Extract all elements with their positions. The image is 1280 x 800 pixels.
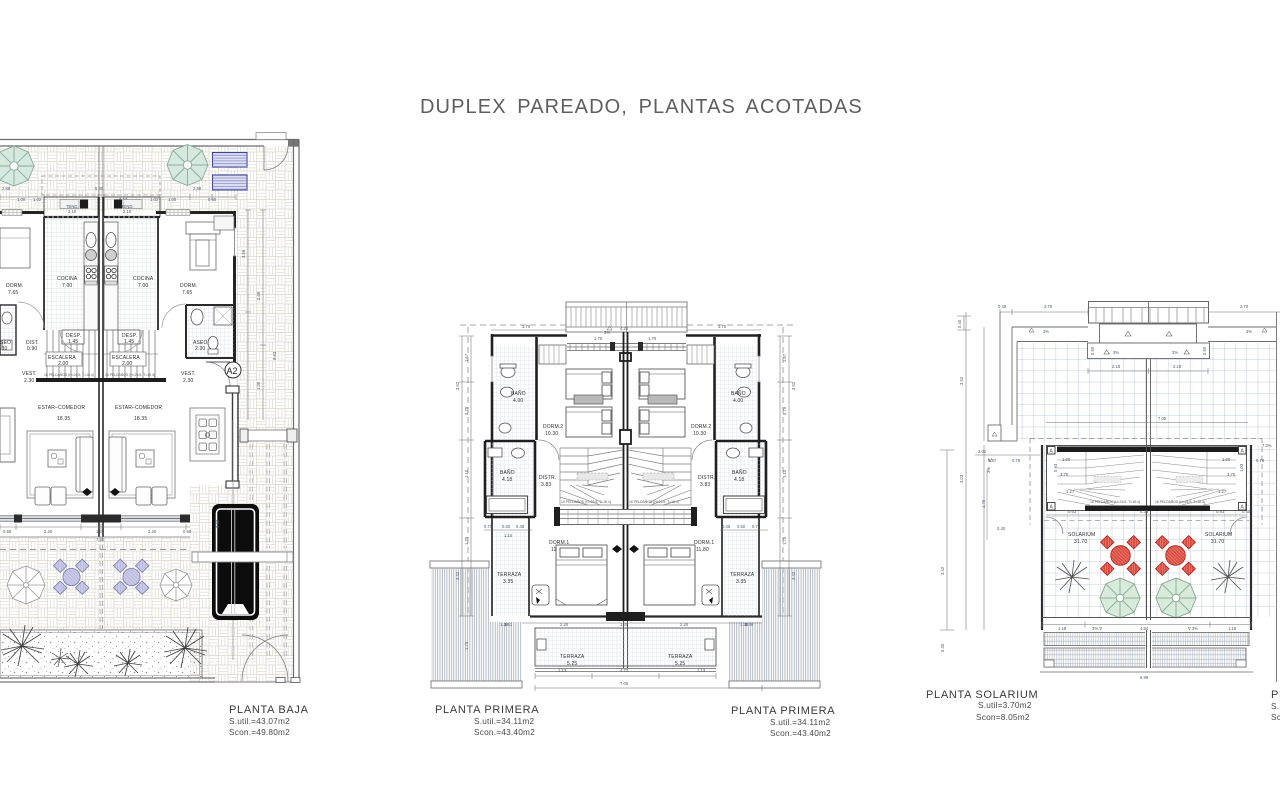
svg-text:DORM.: DORM. xyxy=(6,283,23,289)
svg-text:0.50: 0.50 xyxy=(737,524,746,529)
svg-text:3.52: 3.52 xyxy=(959,376,964,385)
svg-text:DORM.2: DORM.2 xyxy=(691,424,711,430)
svg-text:2.70: 2.70 xyxy=(1240,304,1249,309)
svg-text:0.93: 0.93 xyxy=(1053,463,1058,472)
svg-text:BAÑO: BAÑO xyxy=(511,390,526,397)
svg-text:0.59: 0.59 xyxy=(183,529,192,534)
svg-text:2.88: 2.88 xyxy=(193,186,202,191)
svg-text:1.75: 1.75 xyxy=(464,536,469,545)
svg-text:1.13: 1.13 xyxy=(697,668,706,673)
svg-text:2.25: 2.25 xyxy=(148,529,157,534)
svg-text:1.27: 1.27 xyxy=(1218,489,1227,494)
svg-text:1.70: 1.70 xyxy=(648,336,657,341)
svg-text:16 PELDAÑOS (H=26.5, T=18.4): 16 PELDAÑOS (H=26.5, T=18.4) xyxy=(629,499,679,504)
svg-text:VEST.: VEST. xyxy=(181,371,196,377)
svg-text:5.25: 5.25 xyxy=(675,661,685,667)
svg-text:0.79: 0.79 xyxy=(752,524,761,529)
svg-text:ESTAR–COMEDOR: ESTAR–COMEDOR xyxy=(115,405,162,411)
svg-text:DUPLEX PAREADO, PLANTAS ACOTAD: DUPLEX PAREADO, PLANTAS ACOTADAS xyxy=(420,96,863,118)
svg-text:4.18: 4.18 xyxy=(502,477,512,483)
svg-text:1.00: 1.00 xyxy=(17,197,26,202)
svg-text:0.65: 0.65 xyxy=(208,197,217,202)
svg-text:10.30: 10.30 xyxy=(545,431,558,437)
svg-text:DORM.1: DORM.1 xyxy=(694,540,714,546)
svg-text:1.15: 1.15 xyxy=(504,533,513,538)
svg-text:7.00: 7.00 xyxy=(62,283,72,289)
svg-text:S.util.=34.11m2: S.util.=34.11m2 xyxy=(474,716,534,726)
svg-text:3.70: 3.70 xyxy=(1227,472,1236,477)
svg-text:0.40: 0.40 xyxy=(1242,509,1251,514)
svg-text:4.00: 4.00 xyxy=(513,398,523,404)
svg-text:0.78: 0.78 xyxy=(1256,458,1265,463)
svg-text:1.67: 1.67 xyxy=(782,353,787,362)
svg-text:0.40: 0.40 xyxy=(997,526,1006,531)
svg-text:4.00: 4.00 xyxy=(733,398,743,404)
svg-text:0.65: 0.65 xyxy=(1090,346,1095,355)
svg-text:3.35: 3.35 xyxy=(503,579,513,585)
svg-text:BAÑO: BAÑO xyxy=(731,390,746,397)
svg-text:3.70: 3.70 xyxy=(1060,472,1069,477)
svg-text:3.02: 3.02 xyxy=(978,449,987,454)
svg-text:1.10: 1.10 xyxy=(782,469,787,478)
svg-text:S.: S. xyxy=(1271,701,1279,711)
svg-text:PLANTA PRIMERA: PLANTA PRIMERA xyxy=(731,705,835,717)
svg-text:3.35: 3.35 xyxy=(736,579,746,585)
svg-text:0.65: 0.65 xyxy=(1202,346,1207,355)
svg-text:TERRAZA: TERRAZA xyxy=(497,572,522,578)
svg-text:DISTR.: DISTR. xyxy=(539,475,556,481)
svg-text:3%: 3% xyxy=(1246,329,1252,334)
svg-text:1.75: 1.75 xyxy=(464,641,469,650)
svg-text:1.27: 1.27 xyxy=(1066,489,1075,494)
svg-text:4.18: 4.18 xyxy=(734,477,744,483)
svg-text:16 PELDAÑOS (H=26.5, T=18.4): 16 PELDAÑOS (H=26.5, T=18.4) xyxy=(44,372,94,377)
svg-text:2.88: 2.88 xyxy=(2,186,11,191)
svg-text:Scon.=43.40m2: Scon.=43.40m2 xyxy=(474,727,535,737)
svg-text:4.20: 4.20 xyxy=(620,326,629,331)
svg-text:TERRAZA: TERRAZA xyxy=(730,572,755,578)
svg-text:16 PELDAÑOS (H=26.5, T=18.4): 16 PELDAÑOS (H=26.5, T=18.4) xyxy=(1155,499,1205,504)
svg-text:PLANTA PRIMERA: PLANTA PRIMERA xyxy=(435,704,539,716)
svg-text:S.util.=43.07m2: S.util.=43.07m2 xyxy=(229,716,290,726)
svg-text:SOLARIUM: SOLARIUM xyxy=(1068,532,1095,538)
svg-text:2.20: 2.20 xyxy=(560,622,569,627)
svg-text:1.03: 1.03 xyxy=(1239,463,1244,472)
svg-text:7.65: 7.65 xyxy=(182,290,192,296)
svg-text:5.95: 5.95 xyxy=(95,186,104,191)
svg-text:1.45: 1.45 xyxy=(68,339,78,345)
svg-text:10.30: 10.30 xyxy=(693,431,706,437)
svg-text:4.39: 4.39 xyxy=(1140,509,1149,514)
svg-text:16 PELDAÑOS (H=26.5, T=18.4): 16 PELDAÑOS (H=26.5, T=18.4) xyxy=(1090,499,1140,504)
svg-text:1.45: 1.45 xyxy=(124,339,134,345)
svg-text:0.93: 0.93 xyxy=(1216,509,1225,514)
svg-text:1.70: 1.70 xyxy=(594,336,603,341)
svg-text:7.00: 7.00 xyxy=(620,681,629,686)
svg-text:18.35: 18.35 xyxy=(57,416,70,422)
svg-text:DORM.: DORM. xyxy=(180,283,197,289)
svg-text:7.60: 7.60 xyxy=(96,537,105,542)
svg-text:1.75: 1.75 xyxy=(782,536,787,545)
svg-text:0.40: 0.40 xyxy=(957,319,962,328)
svg-text:1.30: 1.30 xyxy=(740,622,749,627)
svg-text:3.03: 3.03 xyxy=(959,474,964,483)
svg-text:DISTR.: DISTR. xyxy=(698,475,715,481)
svg-text:Sc: Sc xyxy=(1271,712,1280,722)
svg-text:1.13: 1.13 xyxy=(558,668,567,673)
svg-text:0.45: 0.45 xyxy=(940,643,945,652)
svg-text:3.52: 3.52 xyxy=(455,381,460,390)
svg-text:0.45: 0.45 xyxy=(516,524,525,529)
svg-text:6.99: 6.99 xyxy=(1140,675,1149,680)
svg-text:2.00: 2.00 xyxy=(122,361,132,367)
svg-text:3.83: 3.83 xyxy=(700,482,710,488)
svg-text:ESTAR–COMEDOR: ESTAR–COMEDOR xyxy=(38,405,85,411)
svg-text:1.10: 1.10 xyxy=(464,469,469,478)
svg-text:7.65: 7.65 xyxy=(8,290,18,296)
svg-text:2.30: 2.30 xyxy=(183,378,193,384)
svg-text:PLANTA BAJA: PLANTA BAJA xyxy=(229,704,309,716)
svg-text:∇ 3%: ∇ 3% xyxy=(1187,626,1198,631)
svg-text:3%: 3% xyxy=(1172,350,1178,355)
svg-text:7.05: 7.05 xyxy=(1158,416,1167,421)
svg-text:Scon.=49.80m2: Scon.=49.80m2 xyxy=(229,727,290,737)
svg-text:0.50: 0.50 xyxy=(502,524,511,529)
svg-text:31.70: 31.70 xyxy=(1211,539,1224,545)
svg-text:COCINA: COCINA xyxy=(57,276,78,282)
svg-text:BAÑO: BAÑO xyxy=(732,469,747,476)
svg-text:3.56: 3.56 xyxy=(241,249,246,258)
svg-text:0.45: 0.45 xyxy=(722,524,731,529)
svg-text:0.40: 0.40 xyxy=(998,304,1007,309)
svg-text:0.68: 0.68 xyxy=(256,291,261,300)
svg-text:4.73: 4.73 xyxy=(620,668,629,673)
svg-text:Scon.=43.40m2: Scon.=43.40m2 xyxy=(770,728,831,738)
svg-text:2.30: 2.30 xyxy=(24,378,34,384)
svg-text:31.70: 31.70 xyxy=(1074,539,1087,545)
svg-text:3.42: 3.42 xyxy=(455,571,460,580)
svg-text:0.87: 0.87 xyxy=(988,458,997,463)
svg-text:16 PELDAÑOS (H=26.5, T=18.4): 16 PELDAÑOS (H=26.5, T=18.4) xyxy=(561,499,611,504)
svg-text:1.30: 1.30 xyxy=(500,622,509,627)
svg-text:SOLARIUM: SOLARIUM xyxy=(1205,532,1232,538)
svg-text:1.75: 1.75 xyxy=(981,499,986,508)
svg-text:16 PELDAÑOS (H=26.5, T=18.4): 16 PELDAÑOS (H=26.5, T=18.4) xyxy=(105,372,155,377)
svg-text:0.79: 0.79 xyxy=(484,524,493,529)
svg-text:S.util.=34.11m2: S.util.=34.11m2 xyxy=(770,717,830,727)
svg-text:1.00: 1.00 xyxy=(1062,457,1071,462)
svg-text:Scon=8.05m2: Scon=8.05m2 xyxy=(976,712,1030,722)
svg-text:3%: 3% xyxy=(1113,350,1119,355)
svg-text:1.35: 1.35 xyxy=(96,529,105,534)
svg-text:0.63: 0.63 xyxy=(1068,509,1077,514)
svg-text:2.20: 2.20 xyxy=(680,622,689,627)
svg-text:A2: A2 xyxy=(227,366,238,376)
svg-text:3.42: 3.42 xyxy=(791,571,796,580)
svg-text:11.80: 11.80 xyxy=(696,547,709,553)
svg-text:1.02: 1.02 xyxy=(150,197,159,202)
svg-text:0.75: 0.75 xyxy=(464,406,469,415)
svg-text:1.30: 1.30 xyxy=(256,381,261,390)
svg-text:S.util=3.70m2: S.util=3.70m2 xyxy=(978,700,1032,710)
svg-text:7.00: 7.00 xyxy=(138,283,148,289)
svg-text:.30: .30 xyxy=(0,346,7,352)
svg-text:0.93: 0.93 xyxy=(215,519,220,528)
svg-text:COCINA: COCINA xyxy=(133,276,154,282)
svg-text:0.59: 0.59 xyxy=(3,529,12,534)
svg-text:1.30: 1.30 xyxy=(620,622,629,627)
svg-text:0.78: 0.78 xyxy=(1012,458,1021,463)
svg-text:1.02: 1.02 xyxy=(33,197,42,202)
svg-text:3.70: 3.70 xyxy=(718,324,727,329)
svg-text:TERRAZA: TERRAZA xyxy=(668,654,693,660)
svg-text:2.00: 2.00 xyxy=(58,361,68,367)
svg-text:DORM.2: DORM.2 xyxy=(543,424,563,430)
svg-text:2.10: 2.10 xyxy=(68,209,77,214)
svg-text:3% ∇: 3% ∇ xyxy=(1092,626,1102,631)
svg-text:3.42: 3.42 xyxy=(940,566,945,575)
svg-text:PL: PL xyxy=(1271,689,1280,701)
svg-text:3%: 3% xyxy=(604,330,610,335)
svg-text:18.35: 18.35 xyxy=(134,416,147,422)
svg-text:1.00: 1.00 xyxy=(168,197,177,202)
svg-text:3.52: 3.52 xyxy=(791,381,796,390)
svg-text:3.83: 3.83 xyxy=(541,482,551,488)
svg-text:2.10: 2.10 xyxy=(123,209,132,214)
svg-text:2.25: 2.25 xyxy=(44,529,53,534)
svg-text:VEST.: VEST. xyxy=(22,371,37,377)
svg-text:TERRAZA: TERRAZA xyxy=(560,654,585,660)
svg-text:2.18: 2.18 xyxy=(1112,364,1121,369)
svg-text:3.70: 3.70 xyxy=(522,324,531,329)
svg-text:0.90: 0.90 xyxy=(27,346,37,352)
svg-text:0.75: 0.75 xyxy=(782,406,787,415)
svg-text:BAÑO: BAÑO xyxy=(500,469,515,476)
svg-text:5.25: 5.25 xyxy=(567,661,577,667)
svg-text:1.18: 1.18 xyxy=(1058,626,1067,631)
svg-text:1.67: 1.67 xyxy=(464,353,469,362)
svg-text:1.18: 1.18 xyxy=(1228,626,1237,631)
svg-text:7.3%: 7.3% xyxy=(1262,443,1272,448)
svg-text:2.30: 2.30 xyxy=(195,346,205,352)
svg-text:3%: 3% xyxy=(1043,329,1049,334)
svg-text:2.18: 2.18 xyxy=(1173,364,1182,369)
svg-text:1.00: 1.00 xyxy=(1222,457,1231,462)
svg-text:9.63: 9.63 xyxy=(272,351,277,360)
svg-text:2.70: 2.70 xyxy=(1044,304,1053,309)
